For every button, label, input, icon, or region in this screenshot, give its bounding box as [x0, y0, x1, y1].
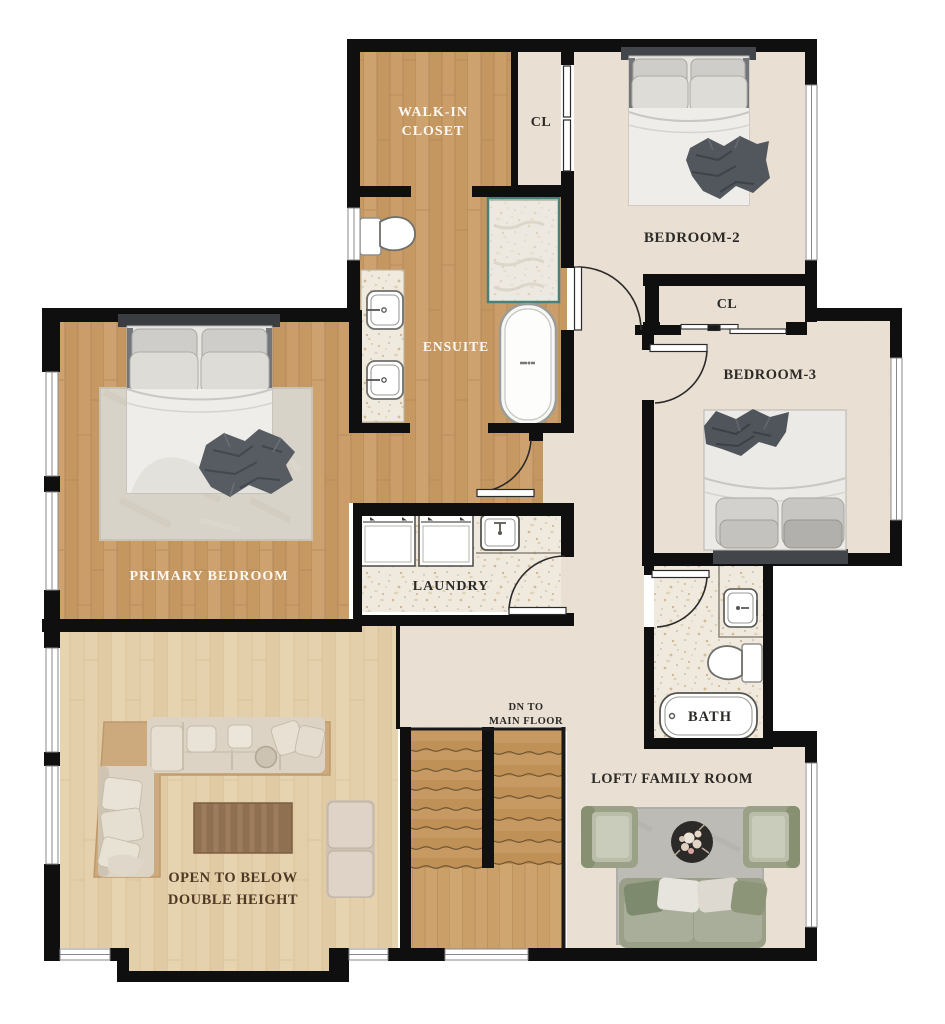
svg-text:PRIMARY BEDROOM: PRIMARY BEDROOM: [129, 569, 288, 584]
svg-text:CL: CL: [531, 115, 551, 130]
svg-text:BATH: BATH: [688, 709, 732, 725]
svg-text:BEDROOM-3: BEDROOM-3: [723, 367, 816, 383]
svg-text:CL: CL: [717, 297, 737, 312]
svg-text:LOFT/ FAMILY ROOM: LOFT/ FAMILY ROOM: [591, 771, 753, 787]
svg-text:DOUBLE HEIGHT: DOUBLE HEIGHT: [168, 892, 298, 908]
svg-text:DN TO: DN TO: [508, 702, 543, 713]
svg-text:BEDROOM-2: BEDROOM-2: [644, 230, 740, 246]
svg-text:WALK-IN: WALK-IN: [398, 105, 468, 120]
svg-text:CLOSET: CLOSET: [402, 124, 465, 139]
svg-text:LAUNDRY: LAUNDRY: [413, 579, 490, 594]
svg-text:OPEN TO BELOW: OPEN TO BELOW: [168, 870, 297, 886]
svg-text:ENSUITE: ENSUITE: [423, 339, 489, 354]
svg-text:MAIN FLOOR: MAIN FLOOR: [489, 716, 563, 727]
